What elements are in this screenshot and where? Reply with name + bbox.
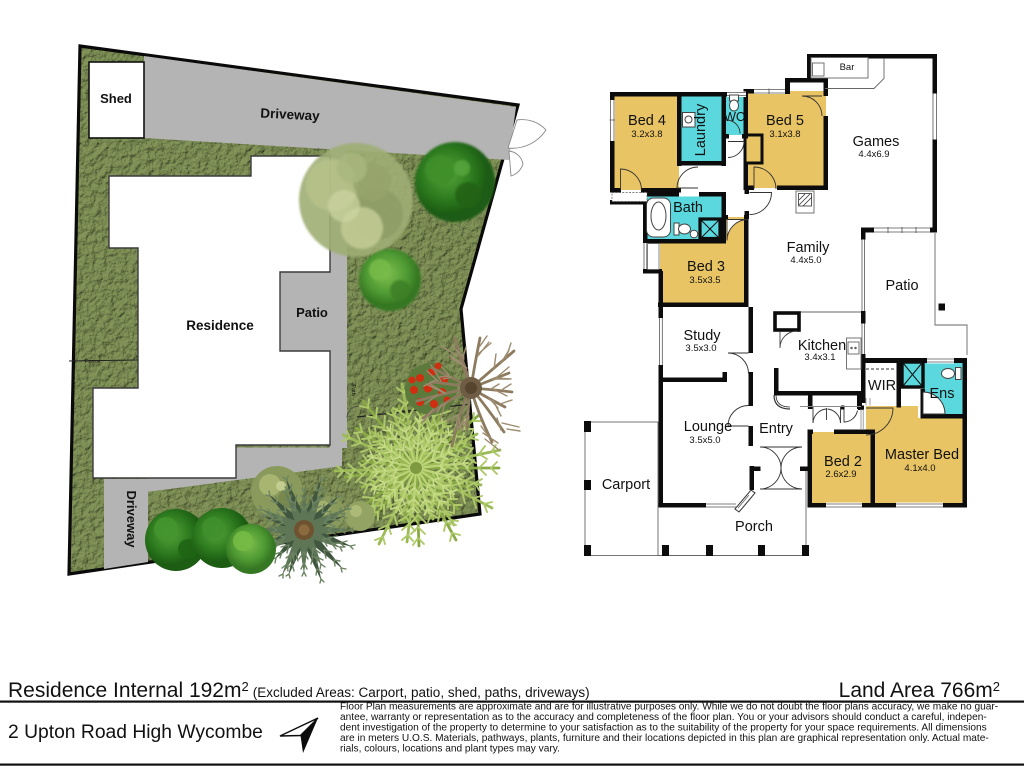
svg-text:4.4x6.9: 4.4x6.9 [858, 149, 889, 160]
svg-text:Entry: Entry [759, 421, 794, 437]
svg-text:Study: Study [683, 328, 721, 344]
svg-text:3.5x3.0: 3.5x3.0 [685, 343, 716, 354]
svg-text:Bed 2: Bed 2 [824, 454, 862, 470]
svg-text:Shed: Shed [100, 91, 132, 106]
svg-text:3.4x3.1: 3.4x3.1 [804, 352, 835, 363]
svg-text:dent investigation of the prop: dent investigation of the property to de… [340, 723, 987, 734]
svg-text:3.1x3.8: 3.1x3.8 [769, 129, 800, 140]
svg-text:Residence Internal 192m2(Exclu: Residence Internal 192m2(Excluded Areas:… [8, 679, 590, 702]
svg-text:Driveway: Driveway [124, 490, 139, 548]
svg-text:Family: Family [787, 240, 830, 256]
svg-text:4.1x4.0: 4.1x4.0 [904, 463, 935, 474]
svg-text:3.5x3.5: 3.5x3.5 [689, 275, 720, 286]
svg-text:Laundry: Laundry [693, 103, 709, 156]
svg-text:Games: Games [853, 134, 900, 150]
svg-text:4.4x5.0: 4.4x5.0 [790, 255, 821, 266]
svg-text:Floor Plan measurements are ap: Floor Plan measurements are approximate … [340, 702, 998, 713]
svg-text:Lounge: Lounge [684, 419, 732, 435]
svg-text:Bed 3: Bed 3 [687, 259, 725, 275]
svg-text:Bed 4: Bed 4 [628, 113, 666, 129]
svg-text:2 Upton Road High Wycombe: 2 Upton Road High Wycombe [8, 722, 263, 743]
svg-text:Master Bed: Master Bed [885, 447, 959, 463]
svg-text:Land Area 766m2: Land Area 766m2 [839, 679, 1000, 702]
svg-text:Bath: Bath [673, 200, 703, 216]
svg-text:Carport: Carport [602, 477, 650, 493]
svg-text:Porch: Porch [735, 519, 773, 535]
svg-text:3.5x5.0: 3.5x5.0 [689, 435, 720, 446]
svg-text:Bed 5: Bed 5 [766, 113, 804, 129]
svg-text:Fence: Fence [85, 359, 100, 365]
svg-text:rials, colours, locations and: rials, colours, locations and plant type… [340, 744, 560, 755]
svg-text:WC: WC [724, 110, 745, 124]
svg-text:Bar: Bar [840, 62, 855, 73]
svg-text:Driveway: Driveway [260, 105, 320, 123]
svg-text:Ens: Ens [930, 386, 955, 402]
svg-text:Patio: Patio [885, 278, 918, 294]
svg-text:Path: Path [350, 384, 356, 395]
svg-text:are in meters U.O.S. Materials: are in meters U.O.S. Materials, pathways… [340, 733, 989, 744]
svg-text:antee, warranty or representat: antee, warranty or representation as to … [340, 712, 987, 723]
svg-text:2.6x2.9: 2.6x2.9 [825, 469, 856, 480]
svg-text:3.2x3.8: 3.2x3.8 [631, 129, 662, 140]
svg-text:Residence: Residence [186, 318, 254, 333]
svg-text:WIR: WIR [868, 378, 896, 394]
svg-text:Patio: Patio [296, 305, 328, 320]
